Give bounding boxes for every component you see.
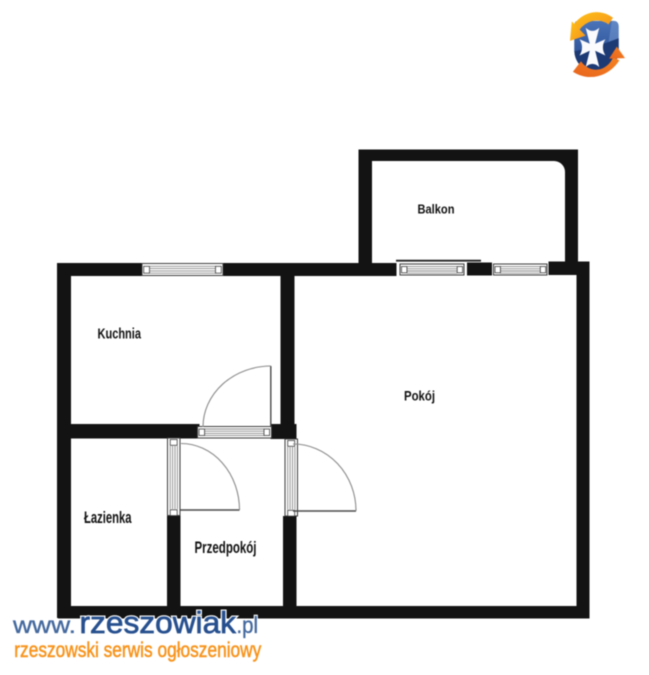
svg-text:Łazienka: Łazienka <box>84 509 132 527</box>
svg-text:www.: www. <box>12 612 76 638</box>
svg-text:Przedpokój: Przedpokój <box>195 539 257 557</box>
svg-text:rzeszowski serwis ogłoszeniowy: rzeszowski serwis ogłoszeniowy <box>14 638 261 662</box>
svg-text:Balkon: Balkon <box>418 203 455 217</box>
svg-text:Pokój: Pokój <box>404 388 435 404</box>
svg-text:.pl: .pl <box>237 612 259 638</box>
svg-text:Kuchnia: Kuchnia <box>98 326 142 343</box>
svg-text:rzeszowiak: rzeszowiak <box>80 605 237 640</box>
